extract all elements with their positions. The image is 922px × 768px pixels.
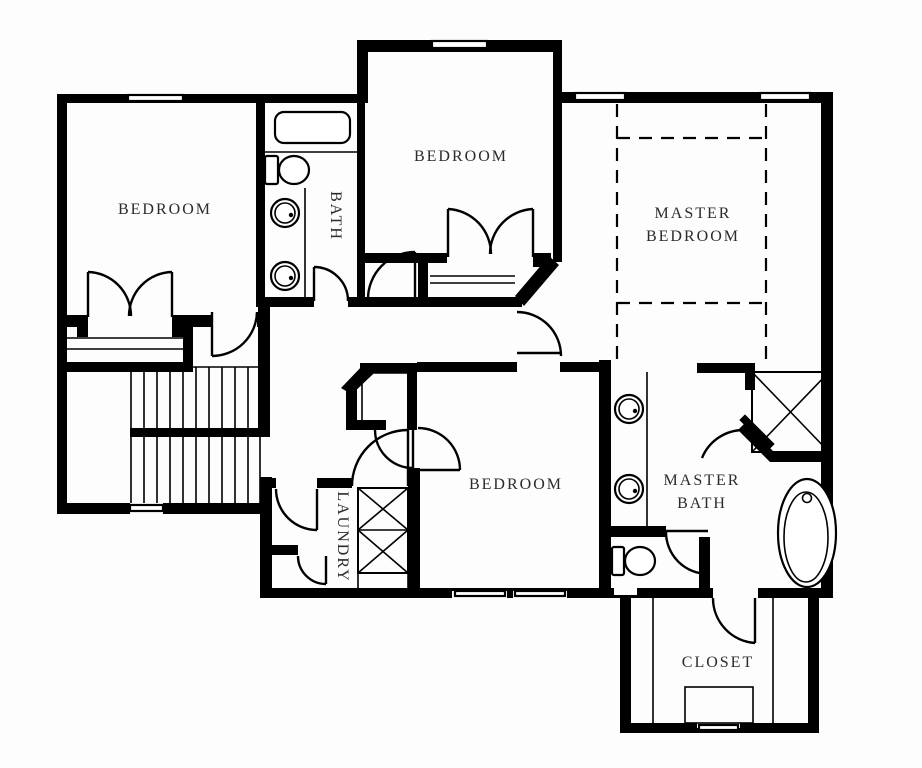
closet-bedroom-top-shelf: [430, 276, 515, 283]
window-master-left: [575, 93, 625, 100]
door-master-closet: [713, 598, 755, 643]
door-hall-nook: [276, 489, 317, 530]
window-master-right: [760, 93, 810, 100]
door-storage: [298, 556, 326, 584]
label-bedroom-top: BEDROOM: [414, 148, 508, 165]
door-bedroom-bottom: [418, 428, 460, 470]
floor-plan: BEDROOM BEDROOM MASTER BEDROOM BATH BEDR…: [0, 0, 922, 768]
door-master-bedroom: [517, 312, 561, 356]
double-door-bedroom-left: [88, 272, 172, 317]
label-closet: CLOSET: [682, 654, 754, 671]
label-master-bedroom-line1: MASTER: [655, 205, 732, 222]
bathtub-oval-icon: [778, 479, 836, 587]
vanity-master-bath: [611, 372, 647, 527]
door-bedroom-left: [212, 312, 257, 356]
walls: [57, 40, 833, 733]
label-master-bath-line2: BATH: [677, 495, 727, 512]
stair-rail: [130, 428, 268, 437]
floor-plan-drawing: BEDROOM BEDROOM MASTER BEDROOM BATH BEDR…: [0, 0, 922, 768]
closet-bedroom-left-shelf: [66, 338, 183, 349]
window-bedroom-bottom-1: [455, 591, 505, 596]
window-bedroom-top: [432, 41, 487, 48]
label-laundry: LAUNDRY: [334, 491, 351, 582]
label-master-bath-line1: MASTER: [664, 472, 741, 489]
stair-treads-upper: [131, 367, 260, 428]
staircase: [130, 367, 268, 503]
washer-dryer-icon: [358, 488, 408, 594]
bathtub-icon: [264, 112, 357, 152]
vanity-bath: [271, 188, 305, 297]
sink-icon: [615, 395, 643, 423]
shower-icon: [752, 372, 829, 452]
window-closet-bottom: [699, 725, 738, 730]
double-door-bedroom-top: [448, 209, 533, 257]
label-bath: BATH: [327, 191, 344, 241]
stair-treads-lower: [131, 437, 260, 503]
label-bedroom-left: BEDROOM: [118, 201, 212, 218]
windows: [128, 41, 810, 730]
sink-icon: [271, 199, 299, 227]
label-bedroom-bottom: BEDROOM: [469, 476, 563, 493]
window-bedroom-bottom-2: [515, 591, 565, 596]
toilet-master-icon: [612, 547, 655, 575]
doors: [88, 209, 775, 643]
sink-icon: [271, 262, 299, 290]
window-stairwell: [130, 505, 163, 511]
toilet-bath-icon: [265, 156, 309, 184]
label-master-bedroom-line2: BEDROOM: [646, 228, 740, 245]
window-bedroom-left-top: [128, 95, 183, 101]
door-laundry: [352, 430, 408, 486]
sink-icon: [615, 475, 643, 503]
door-bath: [314, 267, 348, 301]
